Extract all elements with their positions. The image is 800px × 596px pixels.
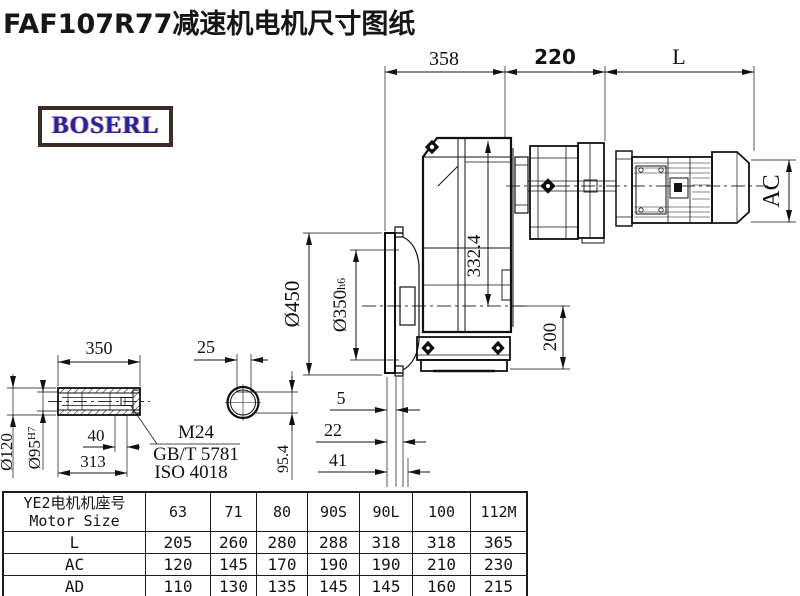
dim-200: 200: [540, 323, 561, 352]
dim-40: 40: [88, 426, 105, 445]
dim-313: 313: [80, 452, 106, 471]
base-plate: [421, 360, 507, 371]
dim-d95h7: Ø95H7: [25, 426, 44, 469]
col-100: 100: [413, 492, 471, 532]
extension-lines: [7, 66, 796, 487]
flange-plate: [385, 233, 395, 373]
label-m24: M24: [178, 422, 214, 443]
screw-icon: [639, 168, 643, 172]
row-label: AC: [3, 554, 146, 576]
centerlines: [48, 186, 768, 402]
dim-358: 358: [429, 48, 459, 70]
dim-d120: Ø120: [0, 433, 16, 471]
screw-icon: [659, 208, 663, 212]
dim-22: 22: [324, 420, 342, 440]
col-112M: 112M: [471, 492, 528, 532]
gearbox-drawing: 358 220 L AC Ø450 Ø350h6 332.4 200 5 22 …: [0, 0, 800, 490]
motor-assembly: [513, 143, 749, 327]
row-label: AD: [3, 576, 146, 596]
dimension-labels: 358 220 L AC Ø450 Ø350h6 332.4 200 5 22 …: [0, 44, 785, 483]
dim-220: 220: [534, 45, 576, 69]
dim-95-4: 95.4: [275, 445, 292, 473]
dim-d350h6: Ø350h6: [330, 278, 351, 332]
screw-icon: [639, 208, 643, 212]
dim-25: 25: [197, 337, 215, 357]
table-row-AC: AC 120 145 170 190 190 210 230: [3, 554, 527, 576]
drawing-page: FAF107R77减速机电机尺寸图纸 BOSERL: [0, 0, 800, 596]
dim-L: L: [672, 44, 685, 69]
coupling-housing: [530, 146, 578, 239]
shaft-end-cap: [133, 390, 140, 413]
output-flange: [385, 227, 419, 376]
dim-5: 5: [337, 388, 346, 408]
col-90S: 90S: [308, 492, 360, 532]
motor-body: [632, 157, 712, 223]
motor-flange: [578, 143, 604, 238]
table-row-AD: AD 110 130 135 145 145 160 215: [3, 576, 527, 596]
dim-d450: Ø450: [280, 281, 304, 328]
table-header-row: YE2电机机座号 Motor Size 63 71 80 90S 90L 100…: [3, 492, 527, 532]
motor-fan-cover: [712, 152, 749, 223]
table-row-L: L 205 260 280 288 318 318 365: [3, 532, 527, 554]
col-80: 80: [257, 492, 308, 532]
label-iso4018: ISO 4018: [154, 462, 227, 483]
col-71: 71: [211, 492, 257, 532]
col-63: 63: [146, 492, 211, 532]
dim-332-4: 332.4: [464, 234, 485, 277]
motor-front-bell: [616, 151, 632, 226]
motor-fins: [634, 163, 710, 173]
shaft-end-view: [225, 384, 261, 421]
row-label: L: [3, 532, 146, 554]
dim-AC: AC: [759, 174, 785, 207]
col-90L: 90L: [360, 492, 413, 532]
screw-icon: [659, 168, 663, 172]
motor-size-table: YE2电机机座号 Motor Size 63 71 80 90S 90L 100…: [2, 491, 528, 596]
motor-fins: [634, 207, 710, 217]
dim-350: 350: [86, 338, 113, 358]
adapter-ring: [515, 157, 528, 213]
dim-41: 41: [329, 450, 347, 470]
table-header-cell: YE2电机机座号 Motor Size: [3, 492, 146, 532]
